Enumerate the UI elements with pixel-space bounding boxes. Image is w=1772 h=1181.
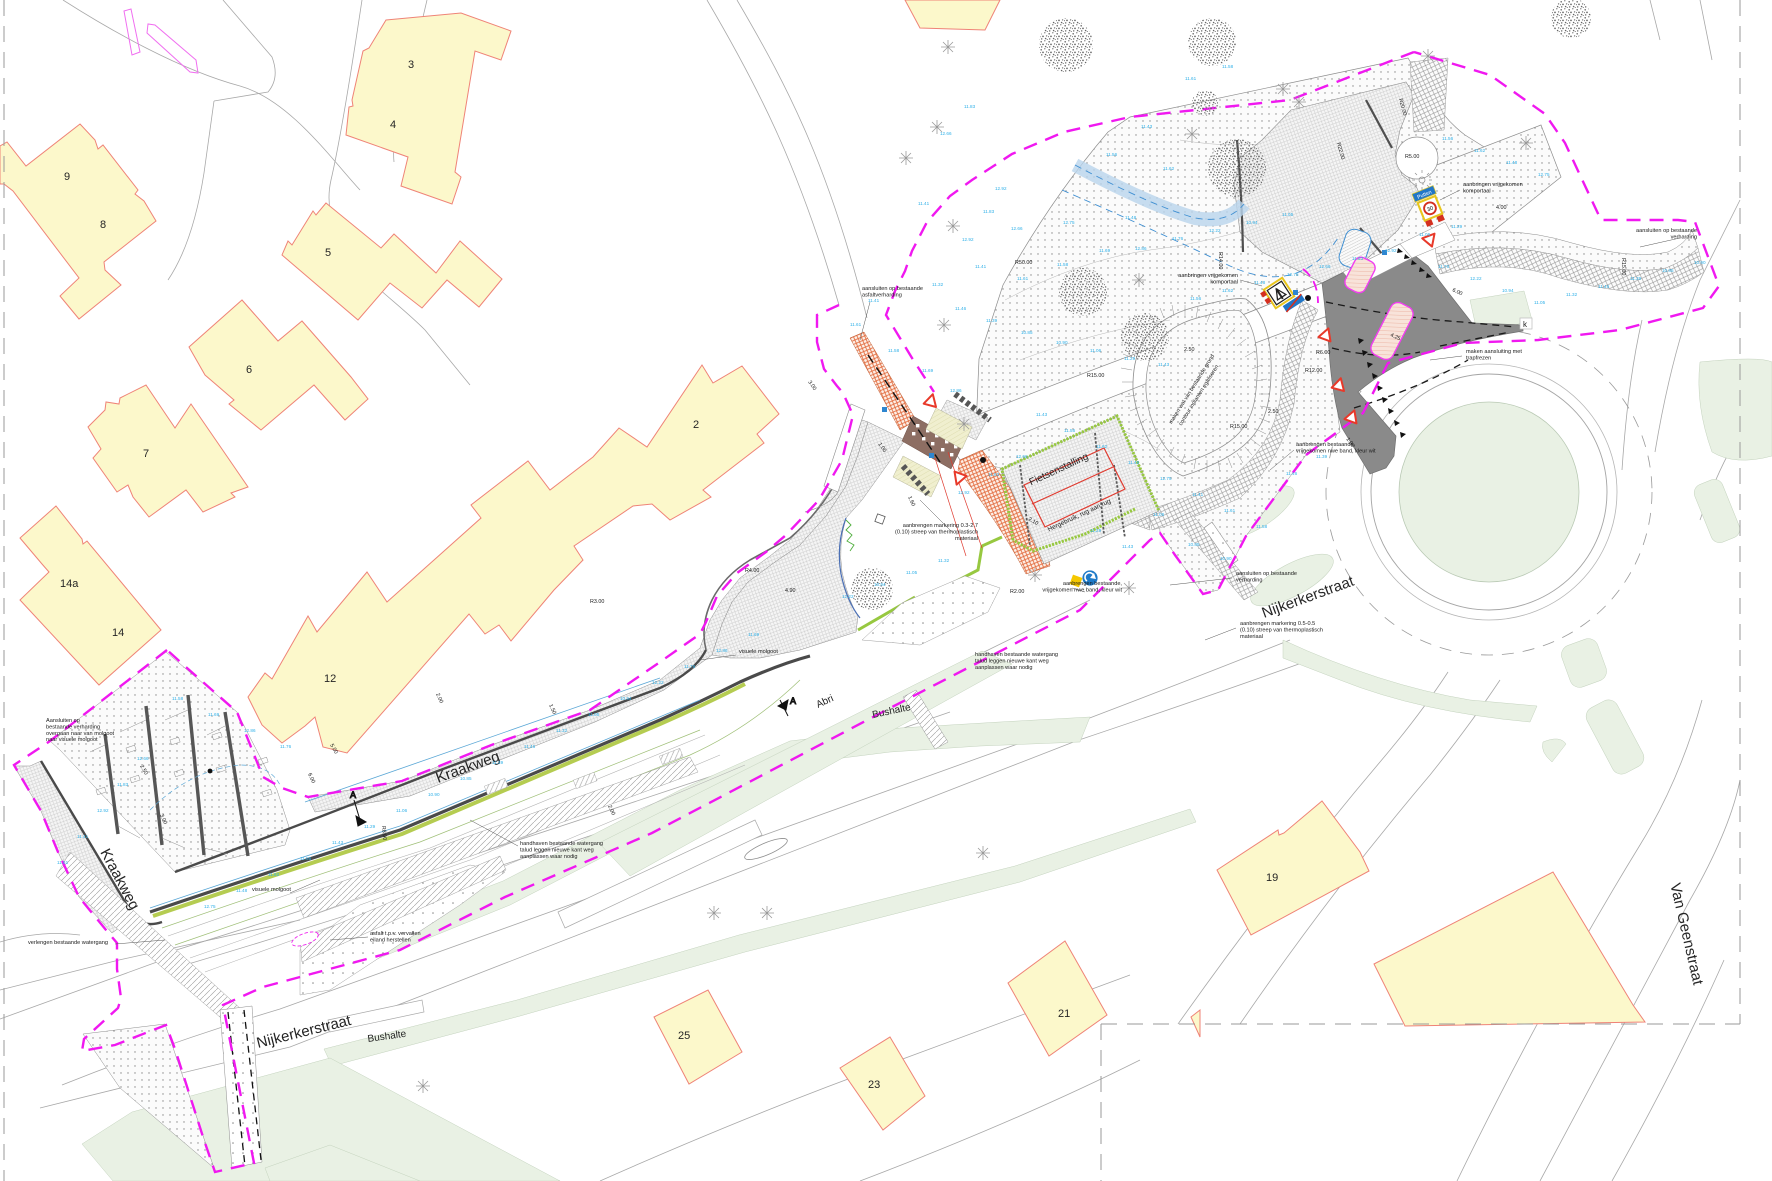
svg-text:handhaven bestaande watergang: handhaven bestaande watergang xyxy=(975,652,1058,658)
svg-text:R5.00: R5.00 xyxy=(1405,154,1419,160)
svg-text:10.85: 10.85 xyxy=(1662,268,1674,273)
svg-text:12: 12 xyxy=(324,673,336,685)
svg-text:11.39: 11.39 xyxy=(986,318,998,323)
svg-text:11.46: 11.46 xyxy=(1286,471,1298,476)
svg-text:11.76: 11.76 xyxy=(280,744,292,749)
svg-text:aanplassen waar nodig: aanplassen waar nodig xyxy=(975,665,1033,671)
svg-text:talud leggen nieuwe kant weg: talud leggen nieuwe kant weg xyxy=(975,658,1049,664)
svg-text:12.75: 12.75 xyxy=(1538,172,1550,177)
svg-text:R15.00: R15.00 xyxy=(1087,373,1104,379)
svg-text:11.46: 11.46 xyxy=(1598,284,1610,289)
svg-text:11.69: 11.69 xyxy=(922,368,934,373)
svg-text:11.61: 11.61 xyxy=(57,860,69,865)
svg-text:11.56: 11.56 xyxy=(1442,136,1454,141)
svg-text:komportaal: komportaal xyxy=(1210,279,1238,285)
svg-text:11.32: 11.32 xyxy=(556,728,568,733)
svg-text:11.46: 11.46 xyxy=(955,306,967,311)
svg-text:11.83: 11.83 xyxy=(117,782,129,787)
svg-text:11.05: 11.05 xyxy=(1534,300,1546,305)
svg-text:verharding: verharding xyxy=(1236,577,1262,583)
svg-text:12.92: 12.92 xyxy=(995,186,1007,191)
svg-text:12.22: 12.22 xyxy=(652,680,664,685)
svg-text:11.05: 11.05 xyxy=(588,712,600,717)
svg-text:10.94: 10.94 xyxy=(620,696,632,701)
svg-text:10.90: 10.90 xyxy=(428,792,440,797)
svg-text:10.90: 10.90 xyxy=(1694,260,1706,265)
svg-text:23: 23 xyxy=(868,1079,880,1091)
svg-text:11.58: 11.58 xyxy=(1256,524,1268,529)
svg-text:11.83: 11.83 xyxy=(988,472,1000,477)
svg-text:10.85: 10.85 xyxy=(460,776,472,781)
svg-text:11.29: 11.29 xyxy=(1451,224,1463,229)
svg-text:aanbringen vrijgekomen: aanbringen vrijgekomen xyxy=(1463,182,1523,188)
svg-text:materiaal: materiaal xyxy=(955,536,978,542)
svg-text:11.62: 11.62 xyxy=(268,872,280,877)
svg-text:12.92: 12.92 xyxy=(958,490,970,495)
svg-text:11.61: 11.61 xyxy=(850,322,862,327)
svg-text:12.86: 12.86 xyxy=(716,648,728,653)
svg-text:11.39: 11.39 xyxy=(492,760,504,765)
svg-text:11.58: 11.58 xyxy=(1057,262,1069,267)
svg-text:12.75: 12.75 xyxy=(1160,476,1172,481)
svg-text:11.39: 11.39 xyxy=(1316,454,1328,459)
svg-text:12.92: 12.92 xyxy=(962,237,974,242)
svg-text:11.05: 11.05 xyxy=(906,570,918,575)
svg-text:11.39: 11.39 xyxy=(1630,276,1642,281)
svg-text:R4.00: R4.00 xyxy=(745,568,759,574)
svg-text:11.83: 11.83 xyxy=(964,104,976,109)
svg-text:2: 2 xyxy=(693,419,699,431)
svg-text:11.62: 11.62 xyxy=(1163,166,1175,171)
svg-text:11.58: 11.58 xyxy=(1222,64,1234,69)
svg-text:aanbringen vrijgekomen: aanbringen vrijgekomen xyxy=(1178,273,1238,279)
svg-text:talud leggen nieuwe kant weg: talud leggen nieuwe kant weg xyxy=(520,847,594,853)
svg-text:visuele molgoot: visuele molgoot xyxy=(252,887,291,893)
svg-text:trapfrezen: trapfrezen xyxy=(1466,355,1491,361)
svg-text:aansluiten op bestaande: aansluiten op bestaande xyxy=(862,286,923,292)
svg-text:12.66: 12.66 xyxy=(1319,264,1331,269)
svg-text:11.56: 11.56 xyxy=(1106,152,1118,157)
svg-text:11.41: 11.41 xyxy=(868,298,880,303)
svg-text:11.43: 11.43 xyxy=(332,840,344,845)
svg-text:12.75: 12.75 xyxy=(1063,220,1075,225)
svg-text:11.41: 11.41 xyxy=(975,264,987,269)
svg-text:14: 14 xyxy=(112,627,124,639)
svg-text:9: 9 xyxy=(64,171,70,183)
svg-text:12.75: 12.75 xyxy=(1287,272,1299,277)
svg-text:A: A xyxy=(790,696,796,706)
svg-text:7: 7 xyxy=(143,448,149,460)
svg-text:12.22: 12.22 xyxy=(842,594,854,599)
svg-text:12.92: 12.92 xyxy=(97,808,109,813)
svg-text:4.00: 4.00 xyxy=(1496,205,1507,211)
svg-text:10.85: 10.85 xyxy=(1021,330,1033,335)
svg-text:(0.10) streep van thermoplasti: (0.10) streep van thermoplastisch xyxy=(1240,627,1323,633)
svg-text:aanplassen waar nodig: aanplassen waar nodig xyxy=(520,854,578,860)
svg-text:R15.00: R15.00 xyxy=(1620,258,1626,275)
svg-text:11.76: 11.76 xyxy=(684,664,696,669)
svg-text:11.69: 11.69 xyxy=(1099,248,1111,253)
svg-text:11.48: 11.48 xyxy=(1125,215,1137,220)
svg-text:R6.00: R6.00 xyxy=(1316,350,1330,356)
svg-text:11.32: 11.32 xyxy=(932,282,944,287)
svg-text:(0.10) streep van thermoplasti: (0.10) streep van thermoplastisch xyxy=(895,529,978,535)
svg-text:aanbrengen bestaande,: aanbrengen bestaande, xyxy=(1063,581,1123,587)
svg-text:11.76: 11.76 xyxy=(1172,236,1184,241)
svg-text:11.43: 11.43 xyxy=(1141,124,1153,129)
svg-text:19: 19 xyxy=(1266,872,1278,884)
svg-text:R3.00: R3.00 xyxy=(590,599,604,605)
svg-text:12.66: 12.66 xyxy=(1016,454,1028,459)
svg-text:4: 4 xyxy=(390,119,396,131)
svg-text:21: 21 xyxy=(1058,1008,1070,1020)
svg-text:10.85: 10.85 xyxy=(1188,542,1200,547)
svg-text:10.94: 10.94 xyxy=(1246,220,1258,225)
svg-text:11.69: 11.69 xyxy=(208,712,220,717)
svg-text:11.61: 11.61 xyxy=(1017,276,1029,281)
svg-text:R12.00: R12.00 xyxy=(1305,368,1322,374)
svg-text:maken aansluiting met: maken aansluiting met xyxy=(1466,349,1522,355)
svg-text:R14.00: R14.00 xyxy=(1217,252,1223,269)
svg-text:12.92: 12.92 xyxy=(1385,248,1397,253)
svg-text:11.46: 11.46 xyxy=(524,744,536,749)
svg-text:11.58: 11.58 xyxy=(172,696,184,701)
svg-text:11.62: 11.62 xyxy=(1222,288,1234,293)
svg-text:11.83: 11.83 xyxy=(1352,256,1364,261)
svg-text:11.41: 11.41 xyxy=(77,834,89,839)
svg-text:11.29: 11.29 xyxy=(364,824,376,829)
svg-text:11.43: 11.43 xyxy=(1036,412,1048,417)
svg-text:12.86: 12.86 xyxy=(1135,246,1147,251)
svg-text:11.48: 11.48 xyxy=(236,888,248,893)
svg-text:aanbrengen markering 0.3-2.7: aanbrengen markering 0.3-2.7 xyxy=(903,523,978,529)
svg-text:11.06: 11.06 xyxy=(1419,232,1431,237)
svg-text:11.56: 11.56 xyxy=(1064,428,1076,433)
svg-text:11.32: 11.32 xyxy=(938,558,950,563)
svg-text:verharding: verharding xyxy=(1671,234,1697,240)
svg-text:R8.00: R8.00 xyxy=(380,826,387,841)
svg-text:4.90: 4.90 xyxy=(785,588,796,594)
svg-text:aansluiten op bestaande: aansluiten op bestaande xyxy=(1636,228,1697,234)
svg-text:bestaande verharding: bestaande verharding xyxy=(46,724,100,730)
svg-text:12.22: 12.22 xyxy=(1209,228,1221,233)
svg-text:overgaan naar van molgoot: overgaan naar van molgoot xyxy=(46,731,115,737)
svg-text:11.56: 11.56 xyxy=(300,856,312,861)
svg-text:visuele molgoot: visuele molgoot xyxy=(739,649,778,655)
svg-text:6: 6 xyxy=(246,364,252,376)
svg-text:10.90: 10.90 xyxy=(1220,556,1232,561)
svg-text:R50.00: R50.00 xyxy=(1015,260,1032,266)
svg-text:11.29: 11.29 xyxy=(1090,528,1102,533)
svg-text:R15.00: R15.00 xyxy=(1230,424,1247,430)
svg-text:11.58: 11.58 xyxy=(888,348,900,353)
svg-text:11.32: 11.32 xyxy=(1566,292,1578,297)
svg-text:25: 25 xyxy=(678,1030,690,1042)
svg-text:12.66: 12.66 xyxy=(1011,226,1023,231)
svg-text:A: A xyxy=(350,790,356,800)
svg-text:11.76: 11.76 xyxy=(1438,264,1450,269)
svg-text:vrijgekomen nwe band, kleur wi: vrijgekomen nwe band, kleur wit xyxy=(1042,587,1122,593)
svg-text:11.06: 11.06 xyxy=(396,808,408,813)
svg-text:verlengen bestaande watergang: verlengen bestaande watergang xyxy=(28,940,108,946)
svg-text:11.56: 11.56 xyxy=(1190,296,1202,301)
svg-text:12.66: 12.66 xyxy=(940,131,952,136)
svg-text:3: 3 xyxy=(408,59,414,71)
svg-text:handhaven bestaande watergang: handhaven bestaande watergang xyxy=(520,841,603,847)
svg-text:12.22: 12.22 xyxy=(1470,276,1482,281)
svg-text:11.05: 11.05 xyxy=(1282,212,1294,217)
svg-text:11.62: 11.62 xyxy=(1096,444,1108,449)
svg-text:8: 8 xyxy=(100,219,106,231)
svg-text:vrijgekomen nwe band, kleur wi: vrijgekomen nwe band, kleur wit xyxy=(1296,448,1376,454)
svg-text:10.94: 10.94 xyxy=(874,582,886,587)
svg-text:R2.00: R2.00 xyxy=(1010,589,1024,595)
svg-text:11.48: 11.48 xyxy=(1128,460,1140,465)
svg-text:12.86: 12.86 xyxy=(244,728,256,733)
svg-text:10.94: 10.94 xyxy=(1502,288,1514,293)
svg-text:12.66: 12.66 xyxy=(137,756,149,761)
svg-text:2.50: 2.50 xyxy=(1268,409,1279,415)
svg-text:11.43: 11.43 xyxy=(1122,544,1134,549)
svg-text:komportaal: komportaal xyxy=(1463,188,1491,194)
svg-text:11.48: 11.48 xyxy=(1506,160,1518,165)
svg-text:14a: 14a xyxy=(60,578,79,590)
svg-text:5: 5 xyxy=(325,247,331,259)
svg-text:asfalt t.p.v. vervallen: asfalt t.p.v. vervallen xyxy=(370,931,421,937)
svg-text:11.29: 11.29 xyxy=(1124,356,1136,361)
svg-text:11.61: 11.61 xyxy=(1224,508,1236,513)
svg-text:11.62: 11.62 xyxy=(1474,148,1486,153)
svg-text:11.06: 11.06 xyxy=(1090,348,1102,353)
svg-text:11.06: 11.06 xyxy=(1153,512,1165,517)
svg-text:11.69: 11.69 xyxy=(748,632,760,637)
svg-text:11.48: 11.48 xyxy=(1254,280,1266,285)
svg-text:11.61: 11.61 xyxy=(1185,76,1197,81)
svg-text:11.41: 11.41 xyxy=(918,201,930,206)
svg-text:naar visuele molgoot: naar visuele molgoot xyxy=(46,737,98,743)
svg-text:materiaal: materiaal xyxy=(1240,634,1263,640)
svg-text:2.50: 2.50 xyxy=(1184,347,1195,353)
svg-text:12.75: 12.75 xyxy=(204,904,216,909)
svg-text:Aansluiten op: Aansluiten op xyxy=(46,718,80,724)
svg-text:11.43: 11.43 xyxy=(1158,362,1170,367)
svg-text:11.41: 11.41 xyxy=(1192,492,1204,497)
svg-text:aansluiten op bestaande: aansluiten op bestaande xyxy=(1236,571,1297,577)
svg-text:eiland herstellen: eiland herstellen xyxy=(370,937,411,943)
svg-text:aanbrengen markering 0.5-0.5: aanbrengen markering 0.5-0.5 xyxy=(1240,621,1315,627)
svg-text:10.90: 10.90 xyxy=(1056,340,1068,345)
svg-text:12.86: 12.86 xyxy=(950,388,962,393)
svg-text:11.83: 11.83 xyxy=(983,209,995,214)
